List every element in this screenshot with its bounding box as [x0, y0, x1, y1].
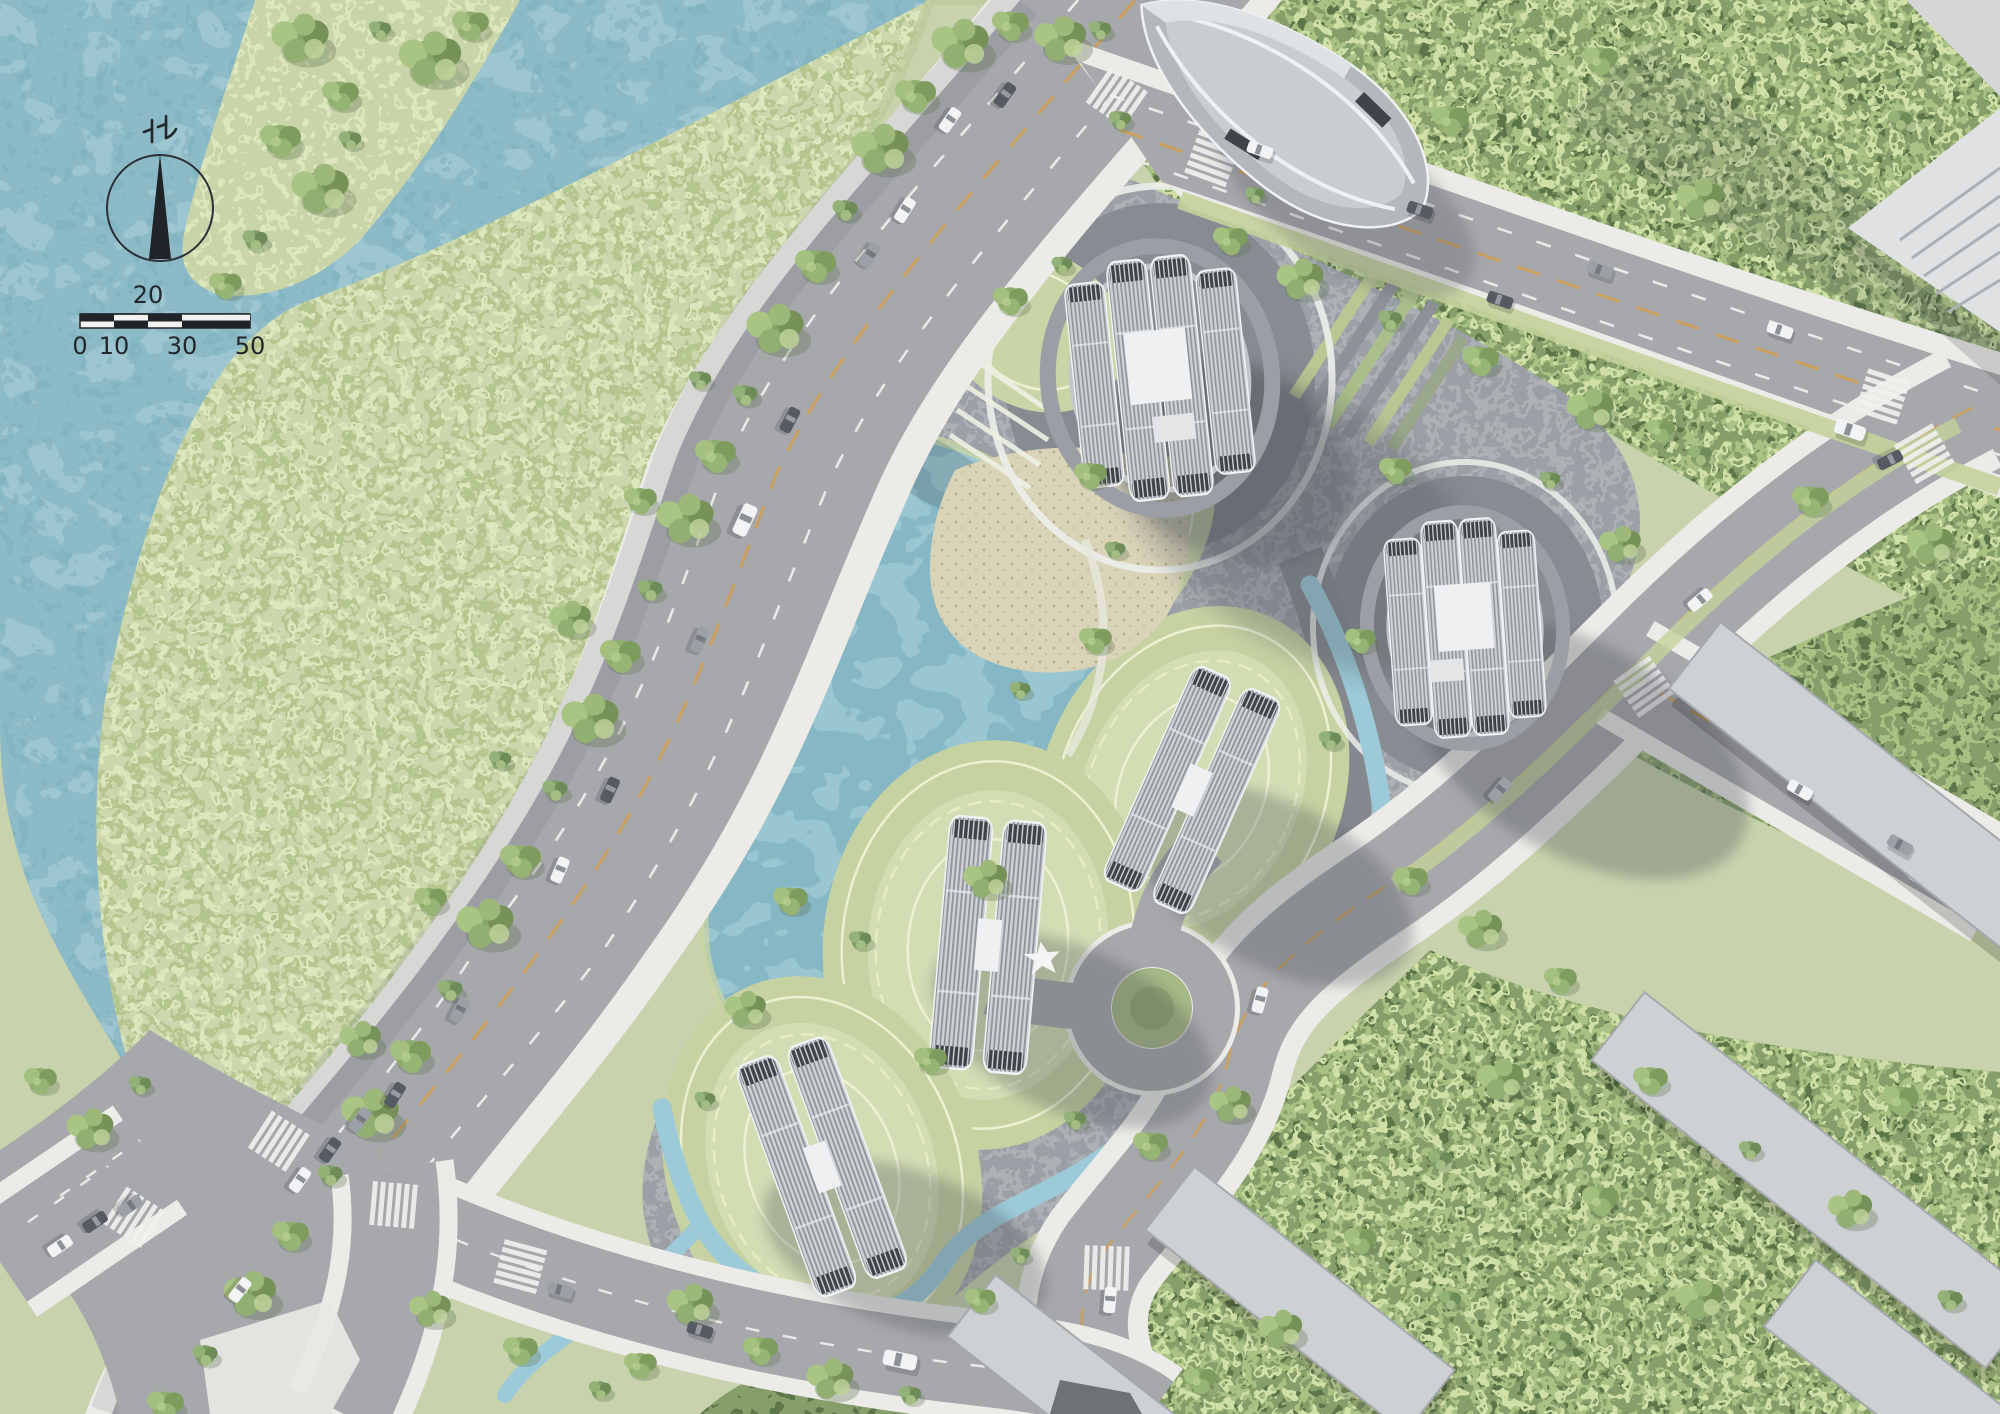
scale-tick-10: 10	[99, 332, 130, 360]
scale-tick-50: 50	[235, 332, 266, 360]
scale-tick-0: 0	[72, 332, 87, 360]
scale-tick-30: 30	[167, 332, 198, 360]
scale-label-20: 20	[133, 281, 164, 309]
site-plan-svg: 20 0 10 30 50	[0, 0, 2000, 1414]
site-plan-image: 20 0 10 30 50	[0, 0, 2000, 1414]
